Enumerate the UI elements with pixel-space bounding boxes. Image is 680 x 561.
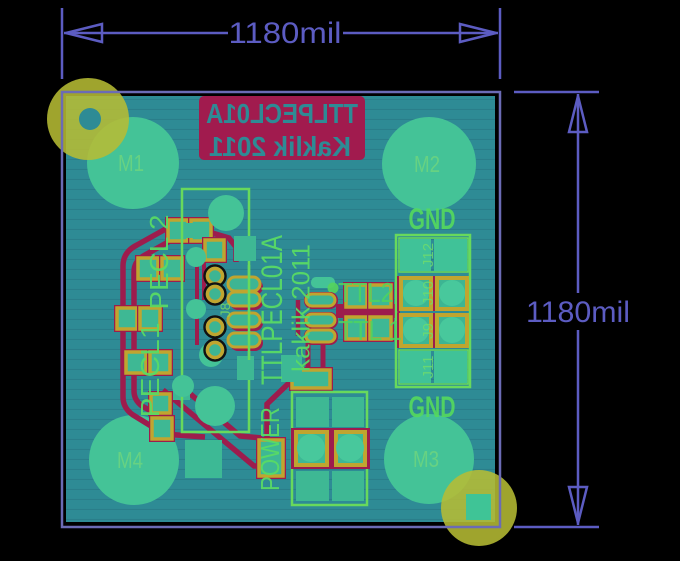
svg-text:TTLPECL01A: TTLPECL01A bbox=[256, 235, 289, 385]
svg-text:M1: M1 bbox=[118, 150, 144, 176]
svg-text:GND: GND bbox=[409, 203, 456, 236]
svg-text:kaklik 2011: kaklik 2011 bbox=[288, 244, 316, 372]
svg-text:PECL 2: PECL 2 bbox=[144, 215, 174, 310]
svg-text:J12: J12 bbox=[420, 243, 437, 267]
svg-text:J8: J8 bbox=[217, 302, 233, 317]
svg-text:POWER: POWER bbox=[255, 407, 285, 491]
svg-text:TTL 1: TTL 1 bbox=[338, 315, 402, 346]
svg-text:J11: J11 bbox=[420, 355, 437, 378]
svg-text:TTLPECL01A: TTLPECL01A bbox=[206, 98, 358, 129]
svg-text:M2: M2 bbox=[414, 151, 440, 177]
svg-text:J9: J9 bbox=[420, 323, 437, 339]
svg-text:PECL1: PECL1 bbox=[135, 323, 165, 418]
svg-text:M3: M3 bbox=[413, 446, 439, 472]
svg-text:M4: M4 bbox=[117, 447, 143, 473]
svg-text:J10: J10 bbox=[420, 281, 437, 305]
svg-text:1180mil: 1180mil bbox=[526, 296, 630, 329]
svg-text:Kaklik 2011: Kaklik 2011 bbox=[209, 131, 351, 162]
svg-text:GND: GND bbox=[409, 391, 456, 424]
svg-text:TTL2: TTL2 bbox=[338, 277, 394, 308]
svg-text:1180mil: 1180mil bbox=[229, 17, 342, 50]
